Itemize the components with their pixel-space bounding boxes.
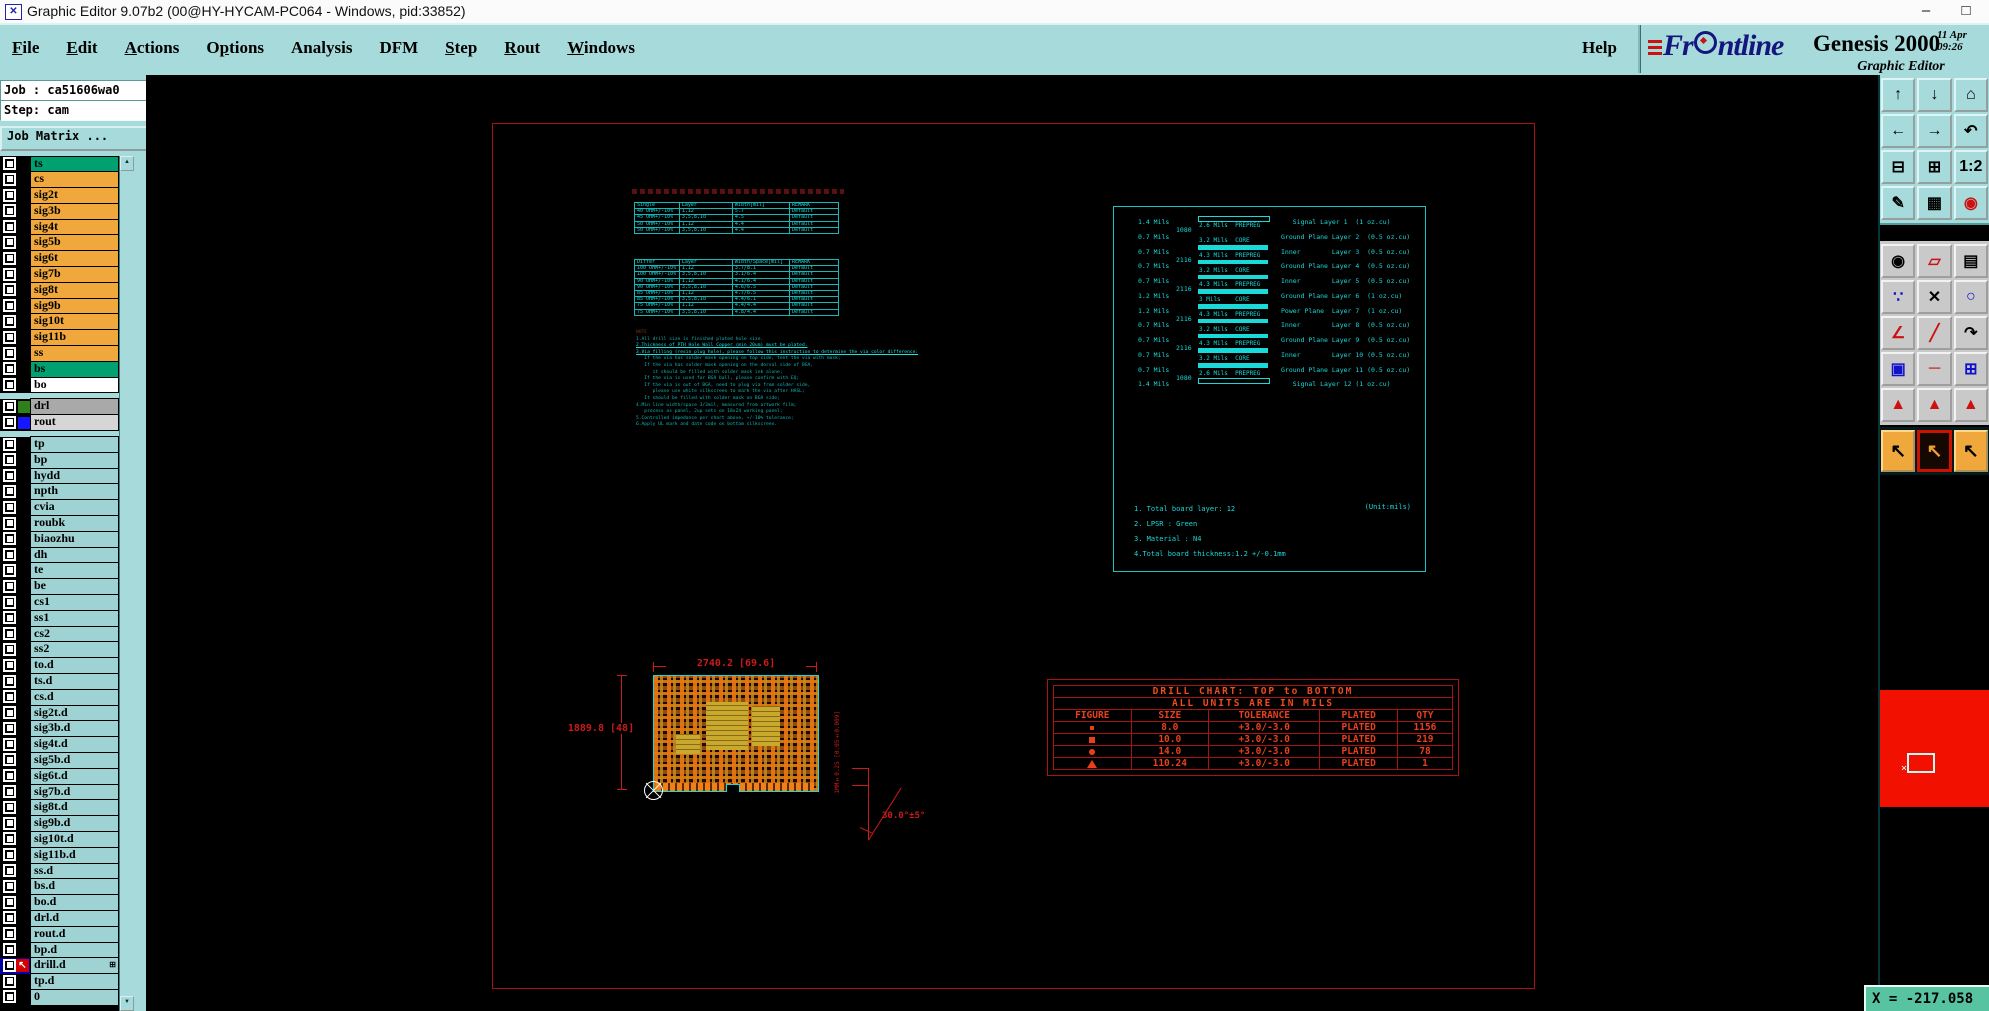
layer-checkbox-cell [0,910,30,926]
dielectric-label: 3.2 Mils CORE [1199,355,1250,362]
layer-label[interactable]: sig5b.d [30,752,119,769]
overview-panel[interactable]: × [1880,690,1989,807]
zoom-out-button[interactable]: ⊟ [1881,150,1915,184]
transform-shape-button[interactable]: ▱ [1917,244,1951,278]
layer-row-cs1[interactable]: cs1 [0,595,119,611]
qty-cell: 78 [1397,746,1452,758]
layer-checkbox[interactable] [3,157,16,170]
layer-label[interactable]: sig9b.d [30,815,119,832]
layer-label[interactable]: sig3b [30,203,119,220]
layer-checkbox-cell [0,784,30,800]
layer-row-sig7b[interactable]: sig7b [0,267,119,283]
layer-label[interactable]: hydd [30,468,119,485]
plated-cell: PLATED [1320,746,1398,758]
layer-row-rout[interactable]: rout [0,415,119,431]
layer-row-bo[interactable]: bo [0,377,119,393]
layer-checkbox[interactable] [3,501,16,514]
layer-row-npth[interactable]: npth [0,484,119,500]
layer-label[interactable]: ss2 [30,641,119,658]
overview-viewport-rect[interactable] [1907,753,1935,773]
layer-row-sig4t[interactable]: sig4t [0,219,119,235]
cell: 75 OHM+/-10% [635,303,680,309]
dielectric-label: 3.2 Mils CORE [1199,237,1250,244]
net-points-button[interactable]: ∵ [1881,280,1915,314]
layer-label[interactable]: ts.d [30,673,119,690]
layer-row-sig4t.d[interactable]: sig4t.d [0,737,119,753]
layer-label[interactable]: bp [30,452,119,469]
menu-help[interactable]: Help [1582,38,1617,58]
layer-label[interactable]: sig7b [30,266,119,283]
layer-checkbox[interactable] [3,362,16,375]
layer-checkbox[interactable] [3,220,16,233]
layer-checkbox-cell [0,361,30,377]
layer-color-swatch[interactable] [17,400,31,414]
column-header: QTY [1397,710,1452,722]
layer-checkbox[interactable] [3,416,16,429]
layer-checkbox[interactable] [3,532,16,545]
delete-button[interactable]: ✕ [1917,280,1951,314]
layer-label[interactable]: sig11b.d [30,847,119,864]
layer-row-cs2[interactable]: cs2 [0,626,119,642]
layer-row-bo.d[interactable]: bo.d [0,895,119,911]
layer-label[interactable]: cs [30,171,119,188]
layer-label[interactable]: sig10t.d [30,831,119,848]
layer-row-sig2t.d[interactable]: sig2t.d [0,705,119,721]
layer-label[interactable]: tp [30,436,119,453]
layer-checkbox-cell [0,816,30,832]
layer-label[interactable]: rout.d [30,926,119,943]
figure-cell [1054,722,1132,734]
layer-label[interactable]: roubk [30,515,119,532]
note-line: It should be filled with solder mask on … [636,396,918,403]
view-right-button[interactable]: → [1917,114,1951,148]
layer-label[interactable]: te [30,562,119,579]
select-mode-single-button[interactable]: ↖ [1881,430,1915,472]
drill-row: 8.0+3.0/-3.0PLATED1156 [1054,722,1453,734]
drill-header-row: FIGURESIZETOLERANCEPLATEDQTY [1054,710,1453,722]
layer-row-sig3b.d[interactable]: sig3b.d [0,721,119,737]
zoom-ratio-button[interactable]: 1:2 [1954,150,1988,184]
coordinate-readout: X = -217.058 [1864,985,1989,1011]
layer-row-sig10t.d[interactable]: sig10t.d [0,831,119,847]
layer-desc: Ground Plane Layer 4 (0.5 oz.cu) [1281,262,1410,270]
layer-checkbox[interactable] [3,643,16,656]
layer-checkbox[interactable] [3,580,16,593]
layer-row-sig9b.d[interactable]: sig9b.d [0,816,119,832]
column-header: FIGURE [1054,710,1132,722]
layer-label[interactable]: sig8t.d [30,799,119,816]
layer-checkbox[interactable] [3,896,16,909]
layer-checkbox-cell [0,500,30,516]
layer-checkbox[interactable] [3,959,16,972]
layer-label[interactable]: ss.d [30,863,119,880]
layer-label[interactable]: cs1 [30,594,119,611]
layer-label[interactable]: to.d [30,657,119,674]
layer-checkbox[interactable] [3,400,16,413]
layer-checkbox[interactable] [3,469,16,482]
layer-label[interactable]: bp.d [30,942,119,959]
impedance-differ-table: DifferLayerWidth/Space[mil]REMARK100 OHM… [634,259,839,316]
layer-desc: Inner Layer 3 (0.5 oz.cu) [1281,248,1410,256]
layer-row-drill.d[interactable]: ↖drill.d⊞ [0,958,119,974]
layer-label[interactable]: sig6t.d [30,768,119,785]
prepreg-code: 1080 [1176,374,1192,382]
layer-checkbox[interactable] [3,485,16,498]
home-view-button[interactable]: ⌂ [1954,78,1988,112]
layer-label[interactable]: biaozhu [30,531,119,548]
job-matrix-button[interactable]: Job Matrix ... [0,126,153,151]
menu-edit[interactable]: Edit [66,38,97,58]
layer-row-cvia[interactable]: cvia [0,500,119,516]
datum-target-icon [644,781,663,800]
maximize-button[interactable]: □ [1952,0,1980,22]
layer-checkbox[interactable] [3,347,16,360]
layer-row-ss.d[interactable]: ss.d [0,863,119,879]
layer-row-sig6t.d[interactable]: sig6t.d [0,768,119,784]
layer-label[interactable]: sig9b [30,298,119,315]
layer-checkbox[interactable] [3,453,16,466]
layer-label[interactable]: bo [30,377,119,394]
layer-label[interactable]: sig10t [30,313,119,330]
layer-checkbox[interactable] [3,738,16,751]
bevel-tick [852,785,868,786]
select-mode-frame-button[interactable]: ↖ [1917,430,1951,472]
layer-label[interactable]: sig3b.d [30,720,119,737]
layer-row-sig5b.d[interactable]: sig5b.d [0,752,119,768]
align-top-button[interactable]: ▲ [1954,388,1988,422]
layer-checkbox-cell [0,235,30,251]
note-line: 2.Thickness of PTH Hole Wall Copper (min… [636,343,918,350]
table-row: 45 OHM+/-10%3,5,8,104.5Default [635,215,839,221]
layer-checkbox[interactable] [3,204,16,217]
layer-checkbox-cell [0,188,30,204]
layer-row-bp[interactable]: bp [0,452,119,468]
layer-checkbox[interactable] [3,659,16,672]
layer-label[interactable]: sig2t.d [30,705,119,722]
layer-checkbox[interactable] [3,832,16,845]
clock: 11 Apr09:26 [1937,29,1989,53]
layer-checkbox-cell [0,415,30,431]
layer-checkbox-cell [0,674,30,690]
drill-figure-sq-s-icon [1090,726,1094,730]
layer-label[interactable]: bs.d [30,878,119,895]
layer-desc: Inner Layer 8 (0.5 oz.cu) [1281,321,1410,329]
frontline-logo: Frntline [1663,29,1783,63]
cell: 4.4 [732,227,789,233]
layer-label[interactable]: rout [30,414,119,431]
qty-cell: 1156 [1397,722,1452,734]
drawing-canvas[interactable]: SingleLayerWidth[mil]REMARK40 OHM+/-10%1… [146,75,1878,1011]
layer-checkbox[interactable] [3,627,16,640]
cell: 3,5,8,10 [679,309,732,315]
drill-chart-table: DRILL CHART: TOP to BOTTOMALL UNITS ARE … [1053,685,1453,770]
note-line: If the via has solder mask opening on to… [636,356,918,363]
add-line-button[interactable]: ╱ [1917,316,1951,350]
layer-row-drl[interactable]: drl [0,399,119,415]
drill-row: 14.0+3.0/-3.0PLATED78 [1054,746,1453,758]
select-mode-section: ↖↖↖ [1880,427,1989,475]
layer-row-roubk[interactable]: roubk [0,516,119,532]
dielectric-label: 4.3 Mils PREPREG [1199,311,1260,318]
bevel-tick [852,768,868,769]
layer-row-bs.d[interactable]: bs.d [0,879,119,895]
view-tools-section: ↑↓⌂←→↶⊟⊞1:2✎▦◉ [1880,75,1989,225]
stackup-diagram: 1.4 Mils Signal Layer 1 (1 oz.cu)0.7 Mil… [1113,206,1426,572]
layer-row-te[interactable]: te [0,563,119,579]
layer-checkbox[interactable] [3,927,16,940]
drill-title-row: DRILL CHART: TOP to BOTTOM [1054,686,1453,698]
layer-desc: Power Plane Layer 7 (1 oz.cu) [1281,307,1402,315]
plated-cell: PLATED [1320,722,1398,734]
menu-actions[interactable]: Actions [125,38,180,58]
layer-checkbox[interactable] [3,706,16,719]
step-name-field: Step: cam [0,100,149,121]
dielectric-label: 2.6 Mils PREPREG [1199,370,1260,377]
layer-checkbox-cell [0,452,30,468]
scroll-up-icon[interactable]: ▲ [120,156,134,171]
layer-checkbox-cell [0,989,30,1005]
layer-checkbox[interactable] [3,880,16,893]
layer-checkbox[interactable] [3,911,16,924]
layer-checkbox-cell [0,156,30,172]
layer-label[interactable]: drl.d [30,910,119,927]
layer-label[interactable]: sig8t [30,282,119,299]
layer-checkbox-cell [0,626,30,642]
height-dimension: 1889.8 [48] [554,723,648,734]
layer-label[interactable]: be [30,578,119,595]
layer-row-tp[interactable]: tp [0,437,119,453]
stackup-unit-note: (Unit:mils) [1365,503,1411,511]
cell: 90 OHM+/-10% [635,278,680,284]
layer-row-cs.d[interactable]: cs.d [0,689,119,705]
impedance-single-table: SingleLayerWidth[mil]REMARK40 OHM+/-10%1… [634,202,839,234]
column-header: TOLERANCE [1209,710,1320,722]
menu-bar: FileEditActionsOptionsAnalysisDFMStepRou… [0,23,1989,79]
layer-checkbox[interactable] [3,975,16,988]
layer-label[interactable]: ss [30,345,119,362]
layer-label[interactable]: sig2t [30,187,119,204]
layer-checkbox[interactable] [3,848,16,861]
layer-row-sig3b[interactable]: sig3b [0,203,119,219]
layer-checkbox[interactable] [3,801,16,814]
menu-dfm[interactable]: DFM [379,38,418,58]
truncate-top-button[interactable]: ▲ [1881,388,1915,422]
layer-checkbox[interactable] [3,675,16,688]
layer-row-sig5b[interactable]: sig5b [0,235,119,251]
setup-button[interactable]: ✎ [1881,186,1915,220]
layer-row-sig7b.d[interactable]: sig7b.d [0,784,119,800]
layer-checkbox[interactable] [3,769,16,782]
view-down-button[interactable]: ↓ [1917,78,1951,112]
select-move-button[interactable]: ◉ [1881,244,1915,278]
layer-checkbox[interactable] [3,189,16,202]
layer-label[interactable]: cs2 [30,626,119,643]
copy-shape-button[interactable]: ▣ [1881,352,1915,386]
dielectric-bar [1198,304,1268,309]
bevel-dimension: 1MM±0.25 [0.05±0.009] [834,711,841,794]
layer-row-0[interactable]: 0 [0,989,119,1005]
menu-analysis[interactable]: Analysis [291,38,352,58]
copper-thickness: 1.4 Mils [1138,380,1169,388]
layer-desc: Signal Layer 12 (1 oz.cu) [1281,380,1391,388]
layer-label[interactable]: drl [30,398,119,415]
layer-row-ts.d[interactable]: ts.d [0,674,119,690]
layer-checkbox[interactable] [3,252,16,265]
select-mode-poly-button[interactable]: ↖ [1954,430,1988,472]
plated-cell: PLATED [1320,734,1398,746]
measure-ruler-button[interactable]: ▤ [1954,244,1988,278]
width-dimension: 2740.2 [69.6] [666,658,806,669]
layer-label[interactable]: sig6t [30,250,119,267]
layer-label[interactable]: ts [30,156,119,172]
layer-label[interactable]: sig5b [30,234,119,251]
layer-row-sig9b[interactable]: sig9b [0,298,119,314]
layer-row-ss[interactable]: ss [0,346,119,362]
menu-step[interactable]: Step [445,38,477,58]
layer-checkbox[interactable] [3,990,16,1003]
layer-row-biaozhu[interactable]: biaozhu [0,531,119,547]
layer-checkbox-cell [0,346,30,362]
layer-checkbox[interactable] [3,690,16,703]
layer-label[interactable]: drill.d⊞ [30,957,119,974]
layer-checkbox[interactable] [3,283,16,296]
layer-checkbox[interactable] [3,564,16,577]
add-arc-button[interactable]: ↷ [1954,316,1988,350]
layer-label[interactable]: sig4t [30,219,119,236]
layer-checkbox[interactable] [3,331,16,344]
stackup-note: 3. Material : N4 [1134,535,1201,543]
menu-options[interactable]: Options [206,38,264,58]
minimize-button[interactable]: – [1912,0,1940,22]
layer-row-drl.d[interactable]: drl.d [0,910,119,926]
layer-checkbox[interactable] [3,378,16,391]
copper-thickness: 0.7 Mils [1138,277,1169,285]
layer-checkbox[interactable] [3,943,16,956]
view-left-button[interactable]: ← [1881,114,1915,148]
layer-display-button[interactable]: ◉ [1954,186,1988,220]
layer-row-sig11b.d[interactable]: sig11b.d [0,847,119,863]
angle-measure-button[interactable]: ∠ [1881,316,1915,350]
layer-checkbox-cell [0,642,30,658]
layer-row-rout.d[interactable]: rout.d [0,926,119,942]
layer-checkbox-cell [0,172,30,188]
layer-label[interactable]: npth [30,483,119,500]
layer-checkbox[interactable] [3,722,16,735]
layer-row-be[interactable]: be [0,579,119,595]
expand-icon[interactable]: ⊞ [109,960,116,969]
layer-checkbox[interactable] [3,611,16,624]
layer-label[interactable]: bo.d [30,894,119,911]
table-row: 75 OHM+/-10%3,5,8,104.8/4.4Default [635,309,839,315]
layer-checkbox[interactable] [3,817,16,830]
layer-checkbox[interactable] [3,596,16,609]
layer-checkbox[interactable] [3,785,16,798]
layer-checkbox-cell [0,314,30,330]
layer-checkbox[interactable] [3,753,16,766]
layer-checkbox[interactable] [3,517,16,530]
zoom-in-button[interactable]: ⊞ [1917,150,1951,184]
layer-row-to.d[interactable]: to.d [0,658,119,674]
layer-label[interactable]: bs [30,361,119,378]
layer-row-sig8t.d[interactable]: sig8t.d [0,800,119,816]
layer-checkbox-cell [0,895,30,911]
cell: 45 OHM+/-10% [635,215,680,221]
layer-checkbox[interactable] [3,173,16,186]
layer-checkbox[interactable] [3,268,16,281]
layer-desc: Ground Plane Layer 6 (1 oz.cu) [1281,292,1402,300]
layer-row-bs[interactable]: bs [0,361,119,377]
layer-label[interactable]: sig4t.d [30,736,119,753]
active-layer-arrow-icon: ↖ [16,959,29,972]
scroll-down-icon[interactable]: ▼ [120,996,134,1011]
column-header: Width/Space[mil] [732,260,789,266]
layer-label[interactable]: tp.d [30,973,119,990]
grid-button[interactable]: ▦ [1917,186,1951,220]
measure-box-button[interactable]: ⊞ [1954,352,1988,386]
tolerance-cell: +3.0/-3.0 [1209,734,1320,746]
column-header: PLATED [1320,710,1398,722]
layer-label[interactable]: cs.d [30,689,119,706]
view-up-button[interactable]: ↑ [1881,78,1915,112]
cell: Default [790,309,839,315]
layer-checkbox-cell [0,203,30,219]
layer-label[interactable]: 0 [30,989,119,1006]
layer-row-bp.d[interactable]: bp.d [0,942,119,958]
fab-notes: NOTE1.All drill size is finished plated … [636,330,918,429]
highlight-line-button[interactable]: ─ [1917,352,1951,386]
layer-row-ss1[interactable]: ss1 [0,610,119,626]
layer-row-sig10t[interactable]: sig10t [0,314,119,330]
menu-file[interactable]: File [12,38,39,58]
cell: 100 OHM+/-10% [635,266,680,272]
layer-color-swatch[interactable] [17,416,31,430]
menu-rout[interactable]: Rout [504,38,540,58]
move-top-button[interactable]: ▲ [1917,388,1951,422]
table-row: 40 OHM+/-10%1,125.7Default [635,209,839,215]
layer-label[interactable]: cvia [30,499,119,516]
layer-row-sig2t[interactable]: sig2t [0,188,119,204]
layer-row-sig11b[interactable]: sig11b [0,330,119,346]
layer-row-dh[interactable]: dh [0,547,119,563]
layer-scrollbar[interactable]: ▲ ▼ [119,156,133,1011]
layer-label[interactable]: sig11b [30,329,119,346]
layer-checkbox-cell [0,298,30,314]
layer-row-ts[interactable]: ts [0,156,119,172]
layer-checkbox-cell [0,926,30,942]
size-cell: 10.0 [1131,734,1209,746]
layer-row-sig8t[interactable]: sig8t [0,282,119,298]
layer-checkbox[interactable] [3,236,16,249]
layer-label[interactable]: dh [30,547,119,564]
layer-row-cs[interactable]: cs [0,172,119,188]
side-panel: Job : ca51606wa0 Step: cam Job Matrix ..… [0,75,146,1011]
add-pad-button[interactable]: ○ [1954,280,1988,314]
layer-row-sig6t[interactable]: sig6t [0,251,119,267]
layer-checkbox[interactable] [3,299,16,312]
previous-view-button[interactable]: ↶ [1954,114,1988,148]
layer-row-ss2[interactable]: ss2 [0,642,119,658]
layer-checkbox[interactable] [3,864,16,877]
layer-label[interactable]: ss1 [30,610,119,627]
layer-label[interactable]: sig7b.d [30,784,119,801]
layer-row-tp.d[interactable]: tp.d [0,974,119,990]
layer-checkbox[interactable] [3,548,16,561]
layer-row-hydd[interactable]: hydd [0,468,119,484]
layer-checkbox[interactable] [3,315,16,328]
menu-windows[interactable]: Windows [567,38,635,58]
copper-region [676,734,700,754]
layer-checkbox[interactable] [3,438,16,451]
